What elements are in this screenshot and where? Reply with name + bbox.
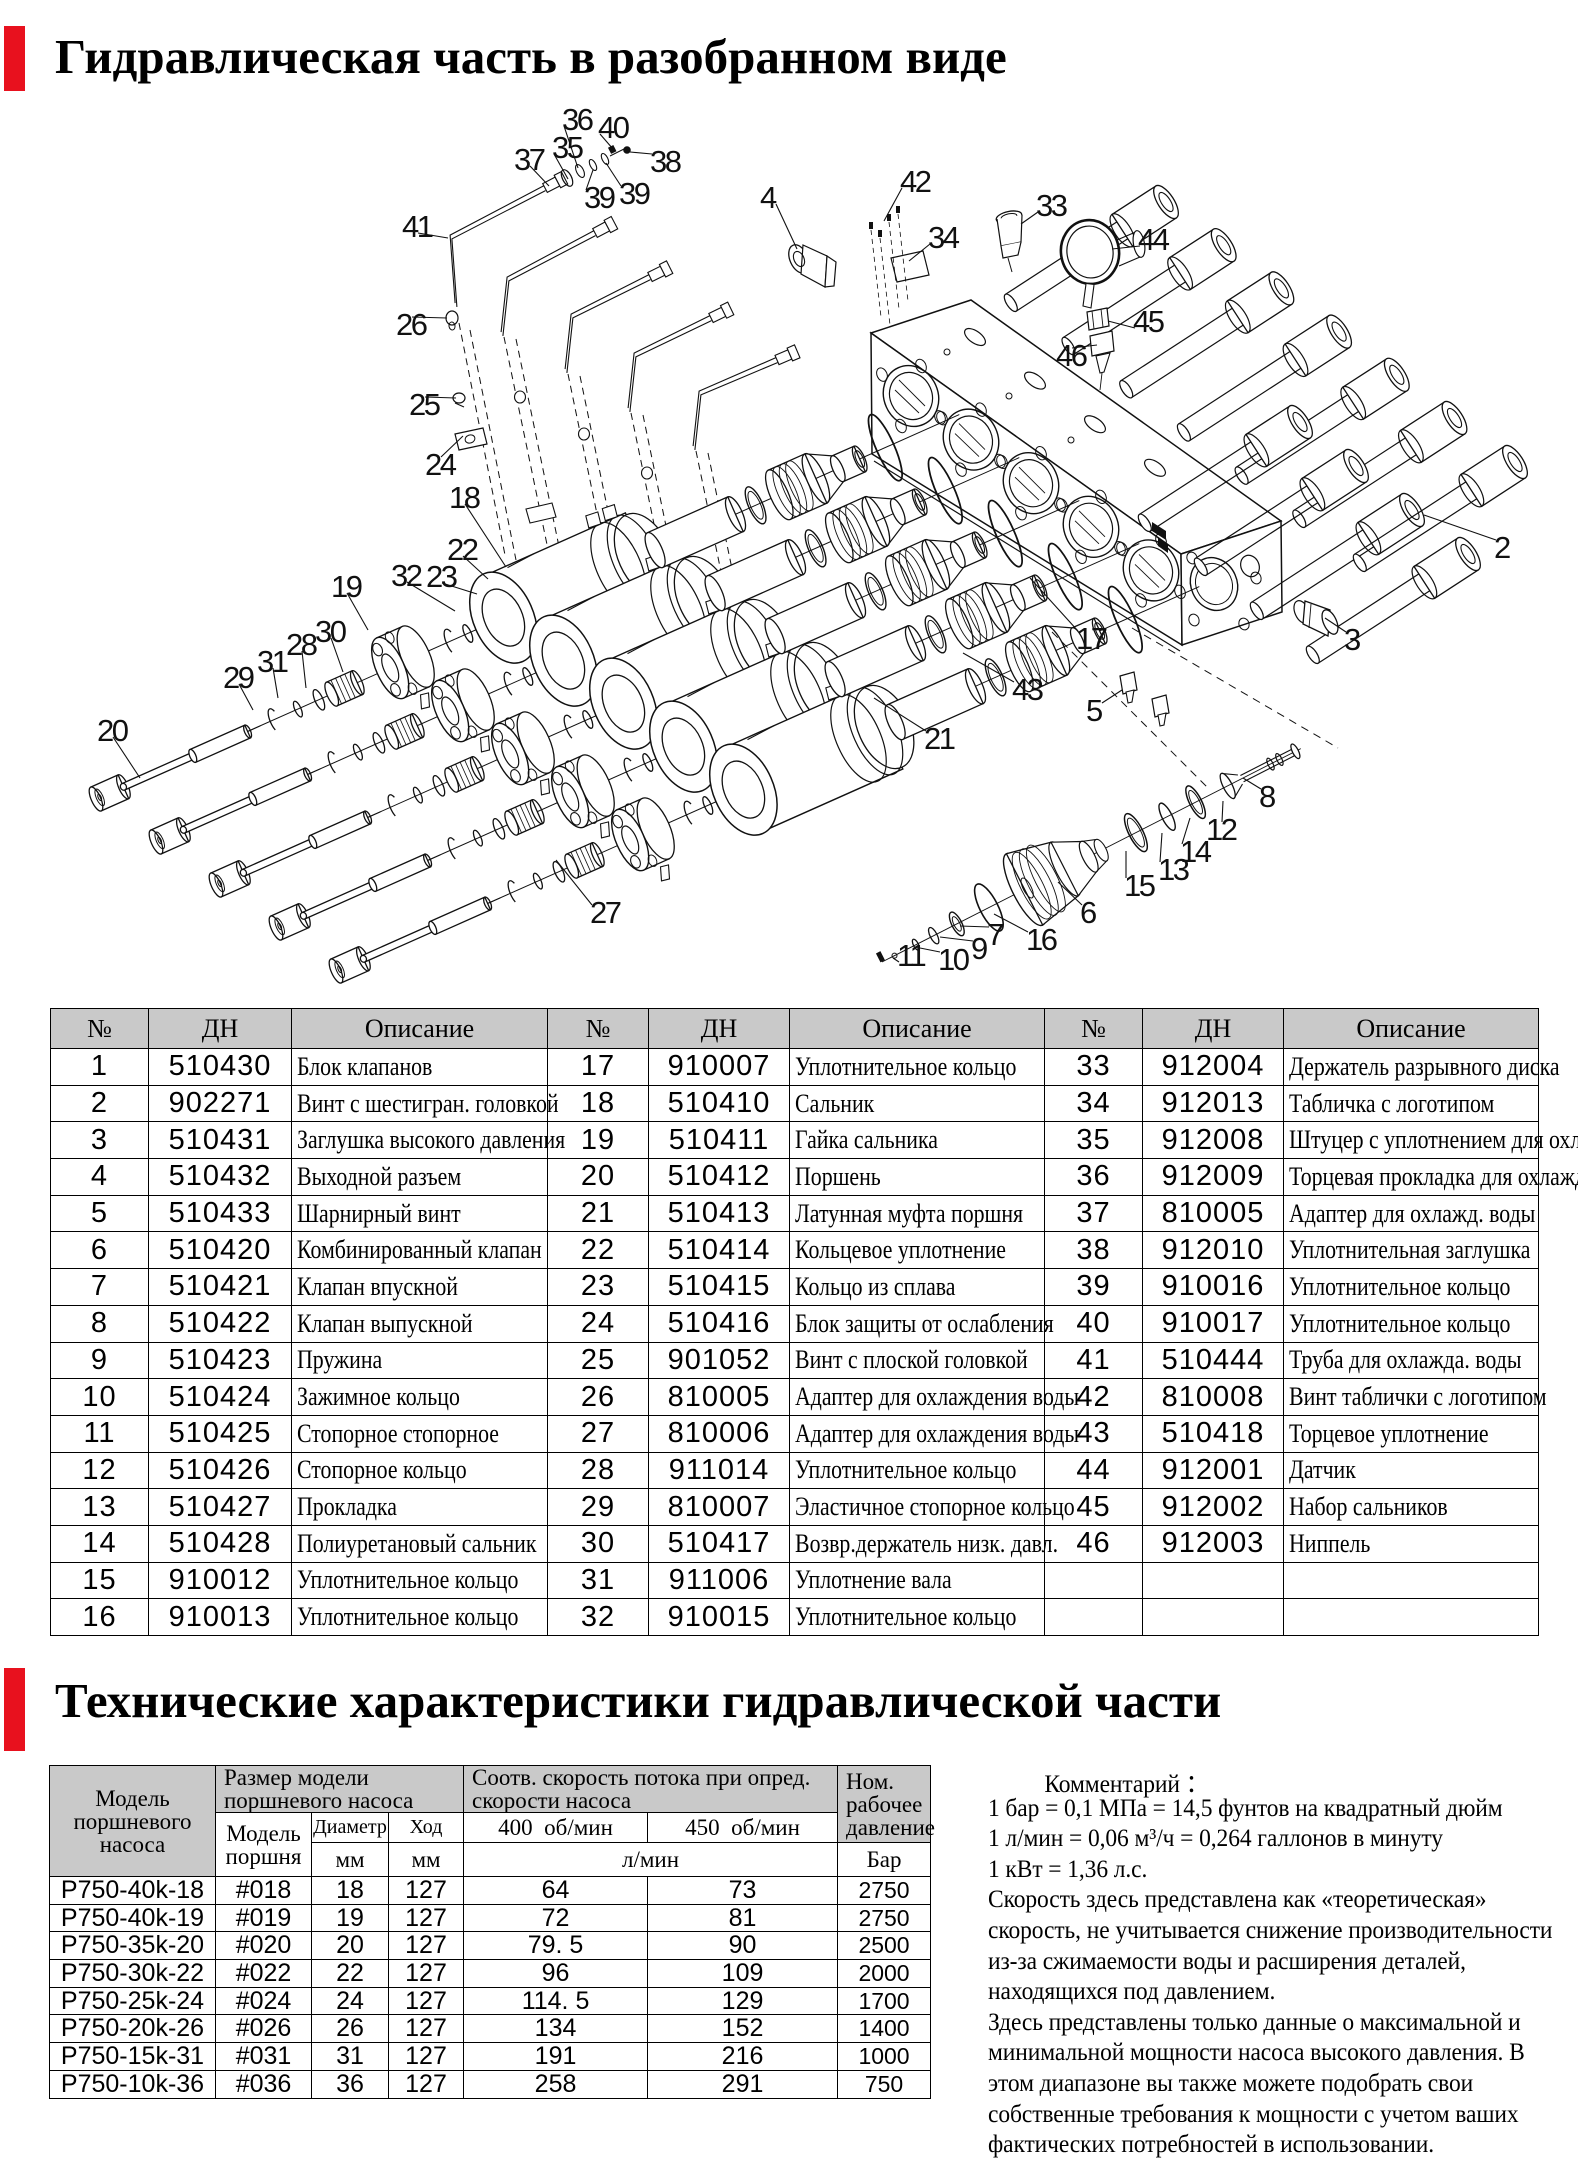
svg-text:28: 28 (286, 627, 317, 662)
svg-text:33: 33 (1036, 188, 1067, 223)
svg-text:34: 34 (928, 220, 960, 255)
svg-text:41: 41 (402, 209, 433, 244)
svg-text:11: 11 (897, 938, 925, 973)
svg-text:32: 32 (391, 558, 422, 593)
svg-text:13: 13 (1158, 852, 1189, 887)
svg-text:4: 4 (760, 180, 777, 215)
svg-text:39: 39 (584, 180, 615, 215)
svg-text:40: 40 (598, 110, 630, 145)
svg-text:42: 42 (900, 164, 931, 199)
svg-text:5: 5 (1086, 693, 1102, 728)
svg-text:16: 16 (1026, 922, 1057, 957)
svg-text:31: 31 (257, 644, 288, 679)
svg-text:9: 9 (971, 931, 987, 966)
svg-text:26: 26 (396, 307, 427, 342)
svg-text:23: 23 (426, 559, 457, 594)
svg-text:44: 44 (1138, 222, 1170, 257)
svg-text:17: 17 (1076, 621, 1107, 656)
svg-text:15: 15 (1124, 868, 1155, 903)
svg-text:2: 2 (1494, 530, 1510, 565)
svg-text:3: 3 (1344, 622, 1360, 657)
svg-text:25: 25 (409, 387, 440, 422)
svg-text:18: 18 (449, 480, 480, 515)
svg-text:6: 6 (1080, 895, 1096, 930)
svg-text:29: 29 (223, 660, 254, 695)
svg-text:38: 38 (650, 144, 681, 179)
svg-text:7: 7 (987, 917, 1003, 952)
svg-text:19: 19 (331, 569, 362, 604)
svg-text:27: 27 (590, 895, 621, 930)
svg-text:20: 20 (97, 713, 129, 748)
svg-text:30: 30 (315, 614, 347, 649)
svg-text:8: 8 (1259, 779, 1275, 814)
svg-text:45: 45 (1133, 304, 1164, 339)
svg-text:36: 36 (562, 102, 593, 137)
svg-text:37: 37 (514, 142, 545, 177)
svg-text:24: 24 (425, 447, 457, 482)
svg-text:43: 43 (1012, 672, 1043, 707)
svg-text:21: 21 (924, 721, 955, 756)
svg-text:12: 12 (1206, 812, 1237, 847)
svg-text:10: 10 (938, 942, 970, 977)
svg-text:46: 46 (1056, 338, 1087, 373)
svg-text:39: 39 (619, 176, 650, 211)
